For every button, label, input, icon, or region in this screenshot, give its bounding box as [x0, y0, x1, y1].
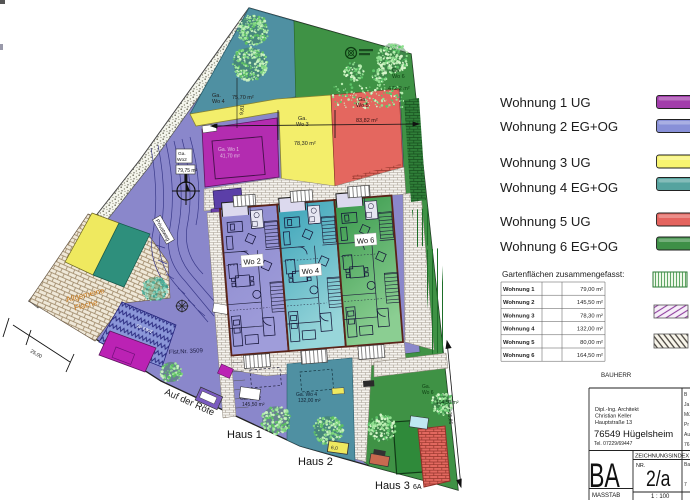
svg-text:MASSTAB: MASSTAB: [592, 493, 620, 499]
svg-text:6,0: 6,0: [331, 445, 339, 452]
svg-text:Wo 4: Wo 4: [301, 266, 319, 276]
svg-text:ZEICHNUNGSINDEX: ZEICHNUNGSINDEX: [635, 454, 689, 460]
svg-text:83,82 m²: 83,82 m²: [356, 118, 378, 124]
svg-text:Christian Keller: Christian Keller: [595, 414, 632, 420]
svg-text:Wo2: Wo2: [177, 157, 187, 163]
svg-text:BA: BA: [589, 458, 620, 495]
svg-text:78,30 m²: 78,30 m²: [294, 141, 316, 147]
svg-text:Wohnung 5: Wohnung 5: [503, 340, 535, 346]
svg-text:6A: 6A: [413, 484, 422, 491]
svg-text:Wo 6: Wo 6: [392, 74, 405, 80]
svg-text:Wohnung 1 UG: Wohnung 1 UG: [500, 95, 591, 110]
svg-text:Tel. 07229/69447: Tel. 07229/69447: [594, 441, 633, 447]
svg-text:Haus 1: Haus 1: [227, 429, 262, 441]
svg-text:145,50 m²: 145,50 m²: [577, 300, 603, 306]
svg-text:Wo 3: Wo 3: [296, 122, 309, 128]
svg-text:Wohnung 6: Wohnung 6: [503, 353, 535, 359]
svg-text:Wo 5: Wo 5: [356, 103, 369, 109]
svg-text:Ja: Ja: [684, 402, 690, 408]
svg-text:79,75 m²: 79,75 m²: [178, 168, 198, 174]
svg-text:Ba: Ba: [684, 462, 690, 468]
svg-text:145,50 m²: 145,50 m²: [242, 402, 265, 408]
svg-text:80,00 m²: 80,00 m²: [580, 340, 603, 346]
svg-text:7: 7: [684, 482, 687, 488]
svg-text:Wo 6: Wo 6: [422, 390, 434, 396]
svg-text:Wohnung 2: Wohnung 2: [503, 300, 534, 306]
svg-text:2/a: 2/a: [646, 467, 671, 491]
svg-text:Wohnung 2 EG+OG: Wohnung 2 EG+OG: [500, 119, 618, 134]
svg-text:Wo 6: Wo 6: [357, 236, 375, 246]
svg-text:Haus 3: Haus 3: [375, 480, 410, 492]
svg-text:BAUHERR: BAUHERR: [601, 372, 632, 379]
svg-text:132,00 m²: 132,00 m²: [577, 327, 603, 333]
svg-text:Ga.: Ga.: [178, 151, 186, 157]
svg-text:1 : 100: 1 : 100: [651, 494, 670, 500]
svg-text:75,70 m²: 75,70 m²: [232, 95, 254, 101]
svg-text:Gartenflächen zusammengefasst:: Gartenflächen zusammengefasst:: [502, 270, 624, 279]
svg-text:Haus 2: Haus 2: [298, 456, 333, 468]
svg-text:132,00 m²: 132,00 m²: [298, 398, 321, 404]
svg-text:Dipl.-Ing. Architekt: Dipl.-Ing. Architekt: [595, 407, 639, 413]
svg-text:Ga. Wo 1: Ga. Wo 1: [218, 147, 239, 153]
svg-text:164,50 m²: 164,50 m²: [577, 353, 603, 359]
svg-text:78,30 m²: 78,30 m²: [580, 313, 603, 319]
svg-text:Wohnung 4: Wohnung 4: [503, 327, 535, 333]
svg-text:NR.: NR.: [636, 463, 645, 469]
svg-text:9,81: 9,81: [239, 105, 246, 115]
svg-text:Au: Au: [684, 432, 690, 438]
svg-text:79,00 m²: 79,00 m²: [580, 287, 603, 293]
svg-text:76: 76: [684, 442, 690, 448]
svg-text:Wohnung 1: Wohnung 1: [503, 287, 535, 293]
svg-text:Mü: Mü: [684, 412, 690, 418]
svg-text:Wohnung 3: Wohnung 3: [503, 313, 535, 319]
svg-text:Wohnung 6 EG+OG: Wohnung 6 EG+OG: [500, 239, 618, 254]
svg-text:Wo 4: Wo 4: [212, 99, 225, 105]
svg-text:472,2 m²: 472,2 m²: [388, 86, 410, 92]
svg-text:41,70 m²: 41,70 m²: [220, 154, 240, 160]
svg-text:164,50 m²: 164,50 m²: [436, 400, 459, 406]
svg-text:Hauptstraße 13: Hauptstraße 13: [595, 420, 632, 426]
svg-text:Pr: Pr: [684, 422, 689, 428]
svg-text:Wohnung 5 UG: Wohnung 5 UG: [500, 214, 591, 229]
svg-text:Wo 2: Wo 2: [243, 256, 261, 266]
svg-text:76549 Hügelsheim: 76549 Hügelsheim: [594, 429, 673, 440]
svg-text:Wohnung 4 EG+OG: Wohnung 4 EG+OG: [500, 180, 618, 195]
svg-text:Wohnung 3 UG: Wohnung 3 UG: [500, 155, 591, 170]
